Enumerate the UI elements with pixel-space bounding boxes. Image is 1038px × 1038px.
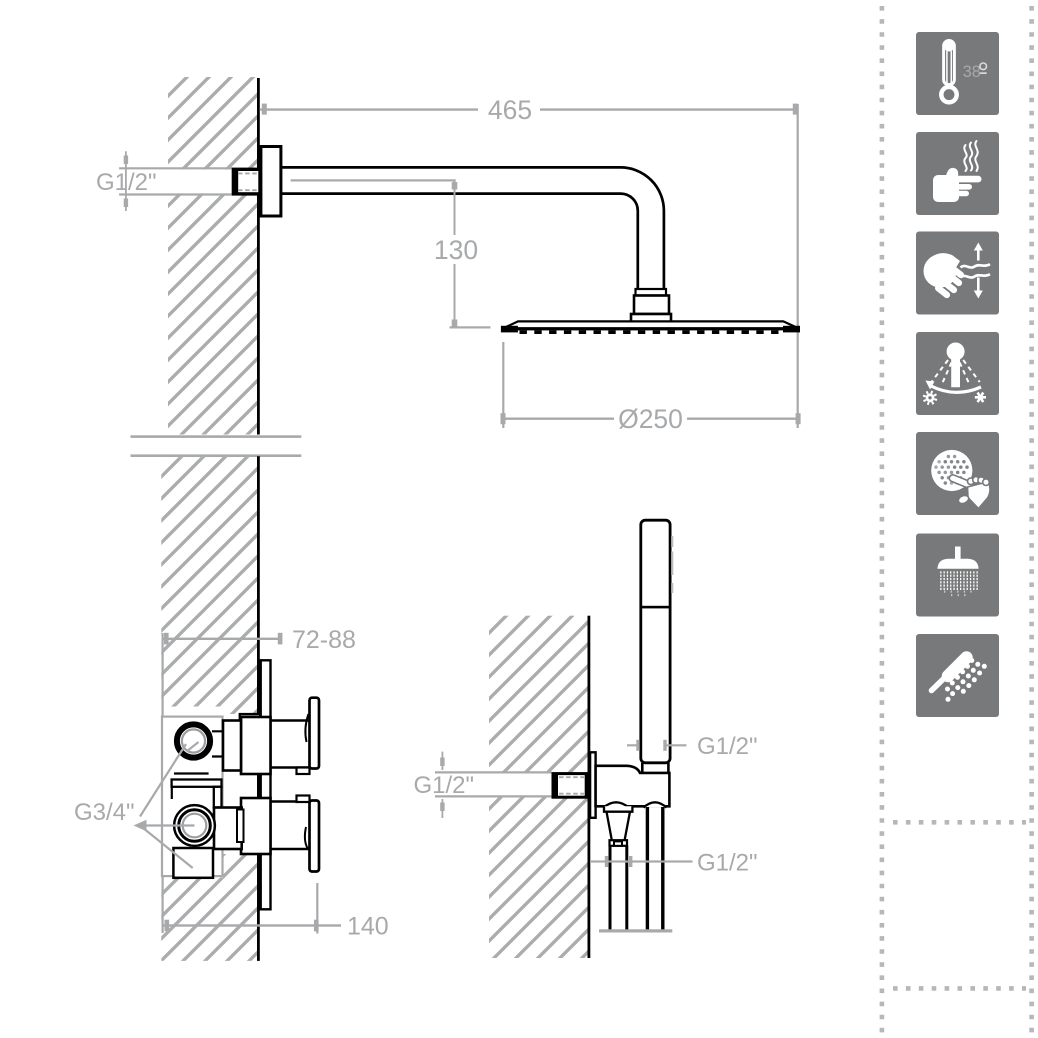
svg-text:G3/4": G3/4": [74, 799, 135, 826]
svg-text:38: 38: [963, 63, 981, 81]
svg-text:140: 140: [347, 913, 389, 941]
svg-text:G1/2": G1/2": [697, 850, 758, 877]
svg-text:Ø250: Ø250: [618, 404, 683, 434]
svg-text:465: 465: [488, 95, 532, 125]
svg-text:G1/2": G1/2": [414, 772, 475, 799]
svg-text:G1/2": G1/2": [96, 169, 157, 196]
svg-text:130: 130: [434, 235, 478, 265]
svg-text:72-88: 72-88: [292, 626, 356, 654]
svg-text:G1/2": G1/2": [697, 733, 758, 760]
